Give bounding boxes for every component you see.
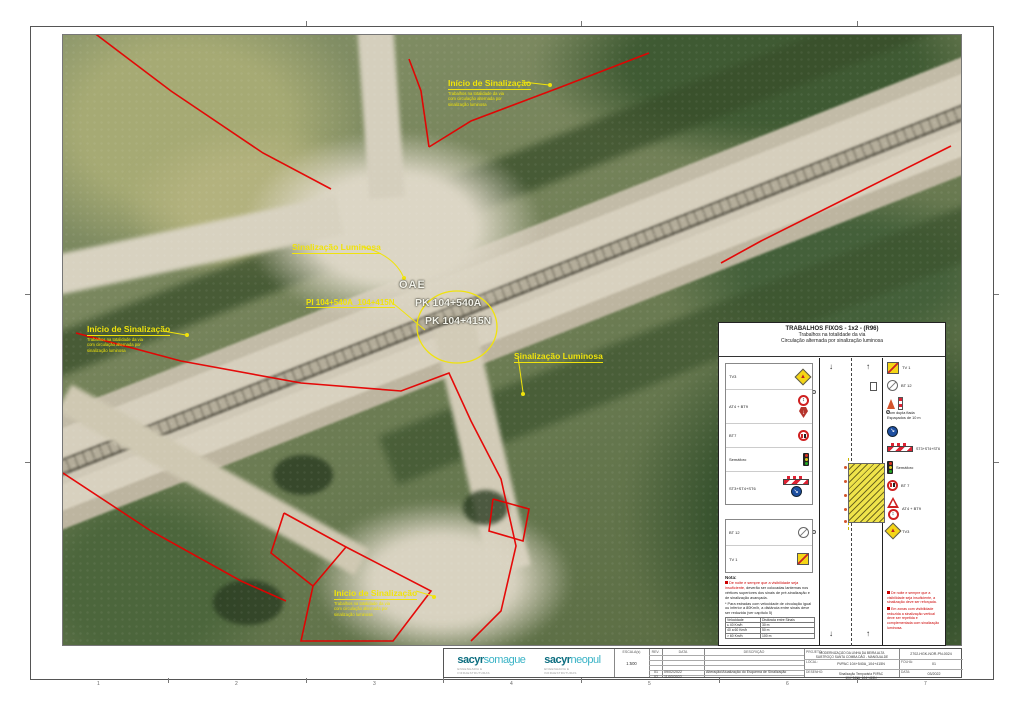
company-logos: sacyrsomague ENGENHARIA EINFRAESTRUTURAS…: [444, 649, 614, 677]
label-inicio-sinalizacao-bottom: Início de Sinalização Trabalhos na total…: [334, 583, 417, 617]
revision-number: 02: [650, 675, 662, 679]
traffic-light-icon: [887, 461, 893, 474]
left-end-sign-sequence: BT 12 TV 1: [725, 519, 813, 573]
sign-row: BT 12: [726, 520, 812, 546]
cone-marker: [844, 520, 847, 523]
traffic-direction-up-icon: ↑: [866, 630, 870, 638]
label-pi-reference: PI 104+540A_104+415N: [306, 292, 395, 310]
note-bullet: [887, 607, 890, 610]
tick: [581, 21, 582, 26]
sign-row: AT4 + BT9 ↕ ↓: [726, 390, 812, 424]
left-sign-sequence: TV3 ▲ AT4 + BT9 ↕ ↓ BT7 Semáforo ST3+ST4…: [725, 363, 813, 505]
sign-plate-marker: [870, 382, 877, 391]
sign-row: ST3+ST4+ST6 ↘: [726, 472, 812, 504]
work-zone-hatch: [848, 463, 885, 523]
leader-dots: [185, 83, 552, 599]
tick: [857, 21, 858, 26]
keep-right-sign-icon: ↘: [887, 426, 898, 437]
scale-value: 1:500: [614, 661, 649, 666]
label-title: Início de Sinalização: [87, 325, 170, 336]
sign-row: [887, 397, 944, 410]
traffic-direction-down-icon: ↓: [829, 630, 833, 638]
label-note: sinalização luminosa: [334, 612, 417, 617]
label-title: Início de Sinalização: [334, 589, 417, 600]
sheet-number: 01: [914, 662, 954, 666]
sacyr-somague-logo: sacyrsomague ENGENHARIA EINFRAESTRUTURAS: [457, 651, 525, 675]
sign-row: Semáforo: [726, 448, 812, 472]
striped-barrier-icon: [887, 446, 913, 452]
divider: [899, 649, 900, 677]
logo-tagline: ENGENHARIA EINFRAESTRUTURAS: [457, 668, 525, 675]
rev-header: REV.: [649, 650, 662, 654]
revision-description: Alteração/Atualização do Esquema de Sina…: [706, 670, 804, 674]
project-value: MODERNIZAÇÃO DA LINHA DA BEIRA ALTA SUBT…: [806, 651, 898, 659]
label-inicio-sinalizacao-left: Início de Sinalização Trabalhos na total…: [87, 319, 170, 353]
panel-notes-right: De noite e sempre que a visibilidade sej…: [887, 591, 943, 630]
note-red-text: De noite e sempre que a visibilidade sej…: [887, 591, 937, 604]
label-note: sinalização luminosa: [87, 348, 170, 353]
document-number: 2702-HGK-NOR-PN-0024: [901, 652, 961, 656]
sign-label: TV3: [902, 529, 909, 534]
logo-name: neopul: [571, 654, 601, 666]
tick: [581, 678, 582, 683]
notes-footnote: * Para estradas com velocidade de circul…: [725, 602, 815, 617]
sign-label: BT 12: [729, 530, 740, 535]
keep-right-sign-icon: ↘: [791, 486, 802, 497]
grid-ref: 5: [648, 681, 651, 687]
sign-row: ↕ AT4 + BT9: [887, 497, 944, 520]
scale-header: ESCALA(s): [614, 650, 649, 654]
divider: [804, 649, 805, 677]
works-warning-diamond-icon: ▲: [795, 368, 812, 385]
sign-label: BT7: [729, 433, 736, 438]
sign-row: ▲ TV3: [887, 525, 944, 538]
date-header: DATA: [662, 650, 704, 654]
warning-triangle-sign-icon: [887, 497, 899, 508]
panel-header: TRABALHOS FIXOS - 1x2 - (R96) Trabalhos …: [719, 323, 945, 357]
tick: [443, 678, 444, 683]
logo-tagline: ENGENHARIA EINFRAESTRUTURAS: [544, 668, 600, 675]
cone-marker: [844, 466, 847, 469]
note-bullet: [725, 581, 728, 584]
grid-ref: 7: [924, 681, 927, 687]
label-title: Sinalização Luminosa: [292, 243, 381, 254]
sign-row: TV3 ▲: [726, 364, 812, 390]
pk-label-a: PK 104+540A: [415, 297, 481, 309]
sign-label: BT 7: [901, 483, 909, 488]
signage-scheme-panel: TRABALHOS FIXOS - 1x2 - (R96) Trabalhos …: [718, 322, 946, 646]
tick: [719, 678, 720, 683]
label-title: Início de Sinalização: [448, 79, 531, 90]
schematic-road: ↓ ↑ ↓ ↑: [819, 358, 883, 646]
cone-marker: [844, 508, 847, 511]
tick: [25, 462, 30, 463]
label-title: Sinalização Luminosa: [514, 352, 603, 363]
traffic-light-icon: [803, 453, 809, 466]
end-of-prohibition-sign-icon: [887, 380, 898, 391]
sign-label: TV 1: [902, 365, 910, 370]
sign-row: TV 1: [726, 546, 812, 572]
revision-number: 01: [650, 670, 662, 674]
panel-subtitle: Circulação alternada por sinalização lum…: [719, 338, 945, 344]
revision-date: 11/03/2022: [664, 675, 704, 679]
label-sinalizacao-luminosa-right: Sinalização Luminosa: [514, 346, 603, 364]
tick: [994, 294, 999, 295]
scale-cell: ESCALA(s) 1:500: [614, 650, 649, 678]
sign-label: BT 12: [901, 383, 912, 388]
sign-label: AT4 + BT9: [902, 506, 921, 511]
label-title: PI 104+540A_104+415N: [306, 298, 395, 308]
logo-brand: sacyr: [457, 654, 483, 666]
end-of-works-sign-icon: [887, 362, 899, 374]
date-value: 03/2022: [914, 672, 954, 676]
sign-row: ↘: [887, 425, 944, 438]
divider: [649, 655, 804, 656]
label-note: sinalização luminosa: [448, 102, 531, 107]
sign-label: Semáforo: [896, 465, 913, 470]
divider: [649, 660, 804, 661]
cone-spacing-note: Com dupla fiada Espaçados de 10 m: [887, 411, 944, 421]
sign-row: ST3+ST4+ST6: [887, 443, 944, 456]
tick: [306, 678, 307, 683]
works-warning-diamond-icon: ▲: [885, 523, 902, 540]
grid-ref: 4: [510, 681, 513, 687]
local-value: PI/PAC 104+540A_104+415N: [824, 662, 898, 666]
sign-label: Semáforo: [729, 457, 746, 462]
description-header: DESCRIÇÃO: [704, 650, 804, 654]
divider: [649, 665, 804, 666]
pk-label-b: PK 104+415N: [425, 315, 491, 327]
traffic-direction-up-icon: ↑: [866, 363, 870, 371]
striped-barrier-icon: [783, 479, 809, 485]
sign-label: TV 1: [729, 557, 737, 562]
tick: [994, 462, 999, 463]
panel-notes: Nota: De noite e sempre que a visibilida…: [725, 575, 815, 639]
sacyr-neopul-logo: sacyrneopul ENGENHARIA EINFRAESTRUTURAS: [544, 651, 600, 675]
table-cell: > 60 Km/h: [726, 633, 761, 638]
sign-row: TV 1: [887, 361, 944, 374]
note-red-text: Em zonas com visibilidade reduzida a sin…: [887, 607, 939, 630]
oae-label: OAE: [399, 279, 426, 291]
end-of-prohibition-sign-icon: [798, 527, 809, 538]
sign-row: BT7: [726, 424, 812, 448]
tick: [306, 21, 307, 26]
right-sign-sequence: TV 1 BT 12 Com dupla fiada Espaçados de …: [887, 361, 944, 543]
sign-label: TV3: [729, 374, 736, 379]
sign-label: AT4 + BT9: [729, 404, 748, 409]
no-overtaking-sign-icon: [798, 430, 809, 441]
note-bullet: [887, 591, 890, 594]
logo-brand: sacyr: [544, 654, 570, 666]
title-block: sacyrsomague ENGENHARIA EINFRAESTRUTURAS…: [443, 648, 962, 678]
priority-sign-icon: ↕: [798, 395, 809, 406]
label-sinalizacao-luminosa-mid: Sinalização Luminosa: [292, 237, 381, 255]
grid-ref: 2: [235, 681, 238, 687]
label-inicio-sinalizacao-top: Início de Sinalização Trabalhos na total…: [448, 73, 531, 107]
table-cell: 100 m: [760, 633, 814, 638]
revision-date: 09/02/2022: [664, 670, 704, 674]
sign-label: ST3+ST4+ST6: [729, 486, 756, 491]
tick: [168, 678, 169, 683]
no-overtaking-sign-icon: [887, 480, 898, 491]
sign-row: BT 12: [887, 379, 944, 392]
striped-post-icon: [898, 397, 903, 410]
logo-name: somague: [484, 654, 526, 666]
traffic-cone-icon: [887, 399, 895, 409]
grid-ref: 6: [786, 681, 789, 687]
end-of-works-sign-icon: [797, 553, 809, 565]
priority-sign-icon: ↕: [888, 509, 899, 520]
cone-marker: [844, 494, 847, 497]
sign-row: Semáforo: [887, 461, 944, 474]
grid-ref: 3: [373, 681, 376, 687]
traffic-direction-down-icon: ↓: [829, 363, 833, 371]
drawing-value: Sinalização Temporária PI/PAC 104+540A_1…: [824, 672, 898, 680]
sign-row: BT 7: [887, 479, 944, 492]
grid-ref: 1: [97, 681, 100, 687]
arrow-sign-icon: ↓: [799, 407, 808, 418]
sign-label: ST3+ST4+ST6: [916, 447, 940, 451]
cone-marker: [844, 480, 847, 483]
speed-distance-table: Velocidade Distância entre Sinais ≤ 40 K…: [725, 617, 815, 638]
tick: [25, 294, 30, 295]
